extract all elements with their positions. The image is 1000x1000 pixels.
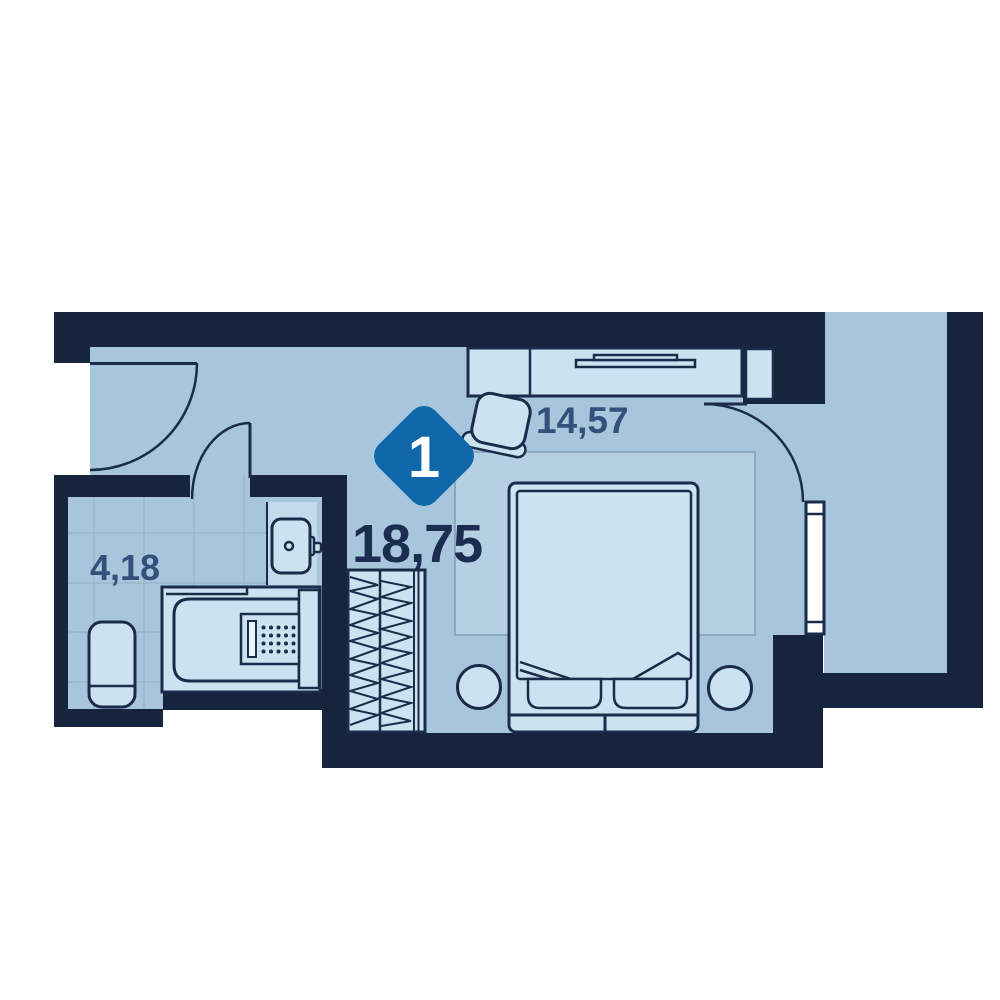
room-area-label: 14,57: [536, 400, 629, 441]
bathtub-slot: [248, 621, 256, 657]
wall-top: [54, 312, 825, 347]
window-frame: [806, 502, 824, 634]
bathtub: [162, 587, 320, 692]
chair-seat: [469, 391, 532, 451]
wall-left-stub: [54, 312, 90, 363]
bed: [509, 483, 698, 732]
badge-room-count: 1: [408, 425, 440, 490]
toilet: [89, 622, 135, 707]
total-area-label: 18,75: [352, 514, 482, 574]
bed-mattress: [517, 491, 691, 679]
sink-drain: [285, 542, 293, 550]
pillow-left: [528, 679, 601, 708]
nightstand-left: [458, 666, 501, 709]
wall-bath-top-left: [54, 475, 190, 497]
nightstand-right: [709, 667, 752, 710]
wall-bottom-right-block: [773, 635, 823, 768]
balcony-window: [806, 502, 824, 634]
wall-main-bottom: [347, 733, 823, 768]
wardrobe: [348, 570, 425, 732]
desk: [468, 348, 742, 396]
wall-bath-right: [322, 475, 347, 768]
wall-balcony-right: [947, 312, 983, 708]
wall-bath-left: [54, 475, 68, 727]
toilet-body: [89, 622, 135, 707]
laptop-screen: [594, 355, 677, 360]
wall-bath-bottom-left: [54, 709, 163, 727]
bathroom-area-label: 4,18: [90, 547, 160, 588]
bathtub-side-shelf: [299, 590, 319, 688]
floor-plan-canvas: 1 18,75 14,57 4,18: [0, 0, 1000, 1000]
floor-plan: 1 18,75 14,57 4,18: [0, 0, 1000, 1000]
wall-niche-cabinet: [746, 349, 773, 399]
pillow-right: [614, 679, 687, 708]
balcony-floor: [824, 312, 947, 673]
